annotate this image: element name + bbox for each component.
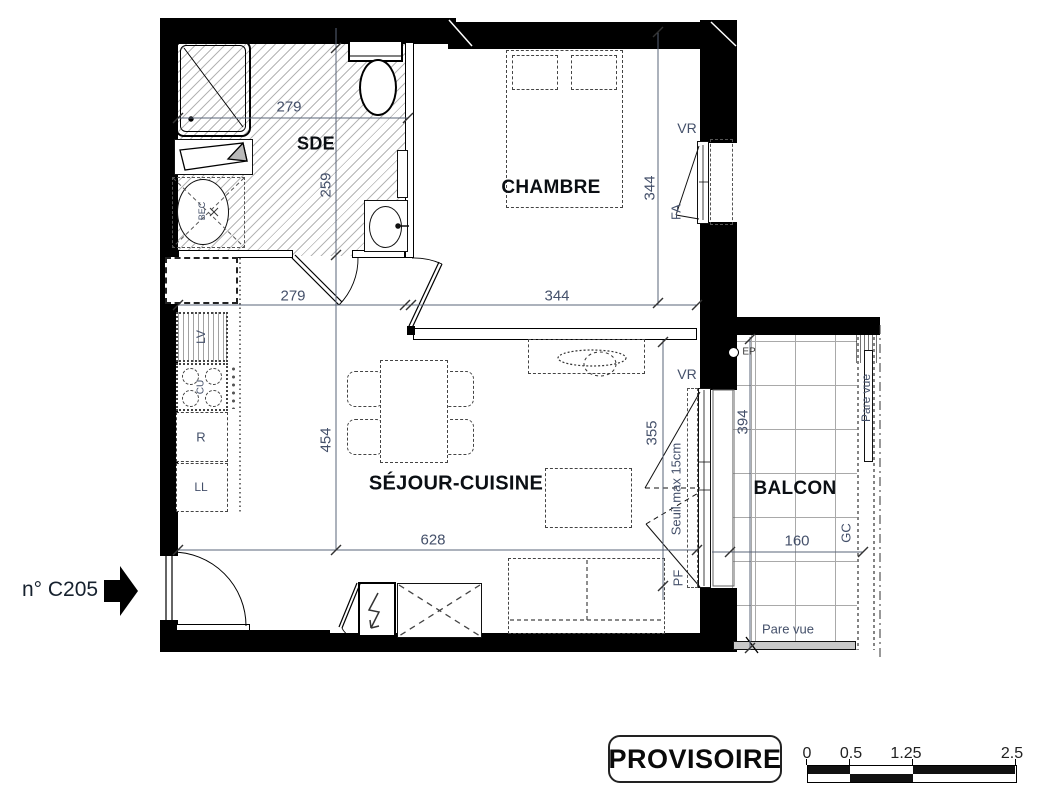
dim-sejour-width: 628 (420, 532, 445, 549)
dining-table (380, 360, 448, 463)
chambre-door (409, 258, 442, 328)
label-pare-vue-side: Pare vue (859, 374, 873, 422)
wall-top-right (448, 22, 737, 49)
wall-bottom-left (160, 630, 330, 652)
pillow (512, 55, 558, 90)
sofa (508, 558, 665, 634)
label-ep: EP (742, 347, 755, 358)
entry-door (166, 552, 246, 627)
shower (175, 40, 251, 137)
entry-door-sill (176, 624, 250, 631)
dim-sde-height: 259 (318, 172, 335, 197)
provisoire-stamp: PROVISOIRE (608, 735, 782, 783)
entrance-arrow-icon (104, 580, 120, 602)
pillow (571, 55, 617, 90)
room-label-sde: SDE (297, 134, 335, 155)
wall-right-mid (700, 222, 737, 390)
wall-right-upper (700, 20, 737, 143)
label-pare-vue-bottom: Pare vue (762, 622, 814, 637)
label-seuil: Seuil max 15cm (669, 443, 684, 535)
dim-chambre-width: 344 (544, 288, 569, 305)
scale-tick-label-125: 1.25 (890, 745, 921, 763)
label-vr-sejour: VR (677, 366, 696, 382)
label-fa: FA (669, 204, 684, 220)
provisoire-stamp-label: PROVISOIRE (608, 744, 781, 775)
burner-icon (205, 390, 222, 407)
shower-inner-rim (180, 45, 246, 132)
scale-bar (807, 765, 1017, 783)
dim-balcon-width: 160 (784, 533, 809, 550)
wall-bottom-right-block (700, 588, 737, 652)
scale-tick-label-0: 0 (803, 745, 812, 763)
sejour-window-frame (698, 388, 711, 588)
room-label-chambre: CHAMBRE (501, 177, 600, 199)
balcony-door-threshold (713, 390, 734, 586)
sde-bench (174, 139, 253, 175)
rainwater-pipe (728, 347, 739, 358)
unit-number: n° C205 (22, 578, 98, 602)
dim-balcon-depth: 394 (735, 409, 752, 434)
scale-tick-label-25: 2.5 (1001, 745, 1023, 763)
kitchen-worktop (165, 257, 238, 304)
scale-bar-row-top (808, 766, 1016, 774)
label-pf: PF (671, 570, 686, 587)
sejour-shutter-box (687, 388, 698, 588)
console-sideboard (528, 339, 645, 374)
entrance-arrow-icon-head (120, 566, 138, 616)
scale-tick-label-05: 0.5 (840, 745, 862, 763)
floor-plan: SDE CHAMBRE SÉJOUR-CUISINE BALCON 279 25… (0, 0, 1046, 800)
sde-wall-shelf (397, 150, 408, 198)
dim-chambre-height: 344 (642, 175, 659, 200)
label-vr-chambre: VR (677, 120, 696, 136)
equip-label-cu: CU (196, 380, 207, 394)
dim-sde-width: 279 (280, 288, 305, 305)
balcon-railing (733, 641, 856, 650)
dining-chair (347, 419, 384, 455)
electrical-cabinet-door (339, 583, 360, 638)
room-label-balcon: BALCON (753, 478, 836, 500)
washbasin-bowl (369, 206, 402, 248)
entry-closet (397, 583, 482, 638)
dim-sejour-height: 454 (318, 427, 335, 452)
burner-icon (205, 368, 222, 385)
dining-chair (347, 371, 384, 407)
equip-label-lv: LV (194, 330, 208, 344)
equip-label-bec: BEC (197, 202, 207, 221)
scale-bar-row-bottom (808, 774, 1016, 782)
room-label-sejour: SÉJOUR-CUISINE (369, 473, 543, 496)
coffee-table (545, 468, 632, 528)
chambre-window-frame (697, 141, 709, 224)
label-gc: GC (839, 523, 854, 543)
dim-window-height: 355 (644, 420, 661, 445)
dim-sde-width-top: 279 (276, 99, 301, 116)
equip-label-fridge: R (196, 430, 205, 445)
chambre-shutter-box (710, 139, 733, 225)
chambre-door-jamb (407, 326, 415, 335)
electrical-cabinet (358, 582, 396, 637)
cooktop-knobs (229, 365, 238, 409)
equip-label-ll: LL (194, 480, 207, 494)
toilet-bowl (359, 59, 397, 116)
